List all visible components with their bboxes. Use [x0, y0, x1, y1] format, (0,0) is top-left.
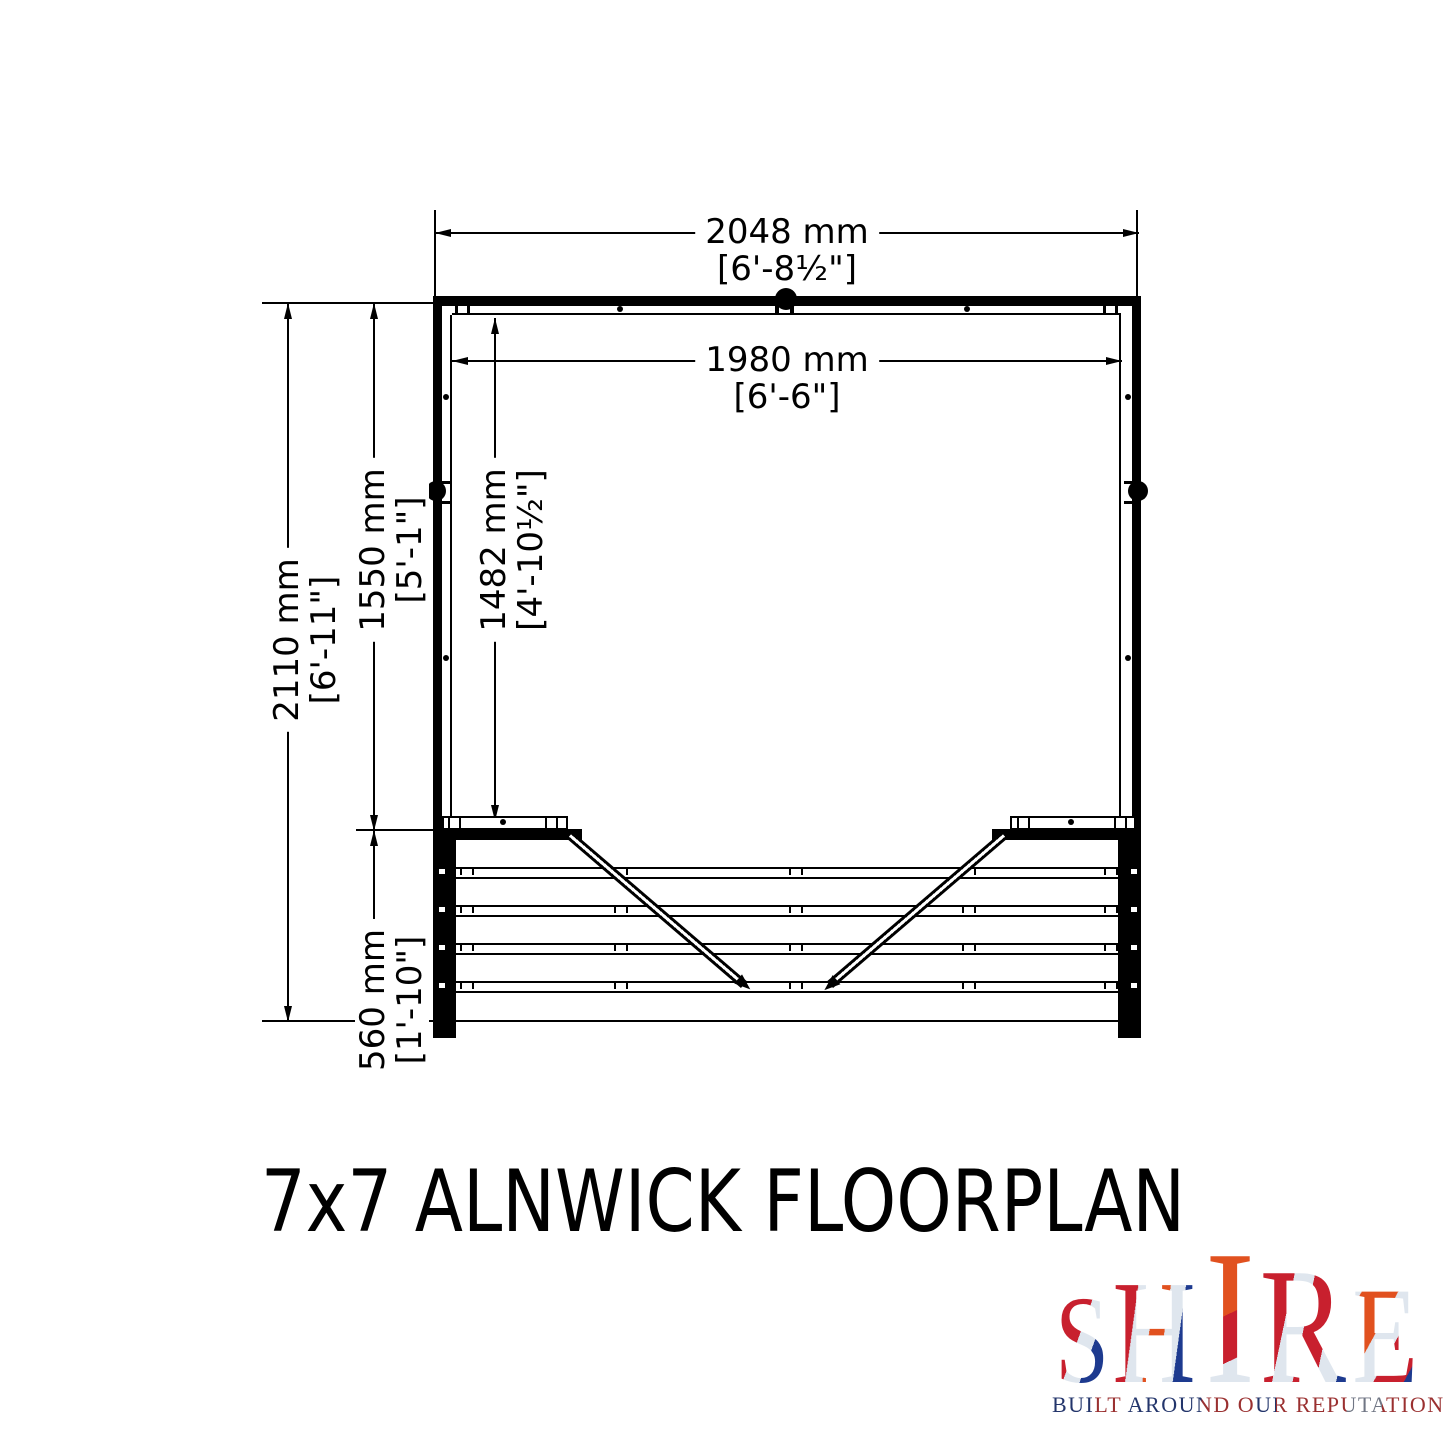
- dim-imperial: [6'-6"]: [705, 379, 869, 416]
- deck-joint-tick: [460, 943, 474, 951]
- floorplan-page: 2048 mm [6'-8½"] 1980 mm [6'-6"] 2110 mm…: [0, 0, 1445, 1445]
- dim-imperial: [1'-10"]: [392, 929, 429, 1071]
- fixing-dot: [1125, 655, 1131, 661]
- dim-label-outer-width: 2048 mm [6'-8½"]: [695, 214, 879, 288]
- deck-joint-tick: [789, 943, 803, 951]
- dim-metric: 1550 mm: [355, 468, 392, 632]
- deck-joint-tick: [614, 905, 628, 913]
- dim-arrow-up: [370, 830, 378, 846]
- logo-tagline: BUILT AROUND OUR REPUTATION: [1052, 1392, 1445, 1418]
- dim-arrow-up: [370, 303, 378, 319]
- fixing-dot: [1068, 819, 1074, 825]
- deck-joint-tick: [614, 981, 628, 989]
- extension-line-top-right: [1136, 210, 1138, 296]
- dim-imperial: [6'-11"]: [306, 558, 343, 722]
- panel-tick: [1028, 817, 1030, 829]
- deck-board-edge: [456, 943, 1118, 955]
- post-notch: [439, 983, 445, 988]
- post-notch: [1131, 945, 1137, 950]
- stud-tick: [1124, 501, 1132, 504]
- deck-joint-tick: [460, 867, 474, 875]
- deck-joint-tick: [1104, 943, 1118, 951]
- deck-joint-tick: [962, 943, 976, 951]
- deck-joint-tick: [1104, 981, 1118, 989]
- dim-arrow-right: [1106, 357, 1122, 365]
- wall-right-inner-line: [1119, 315, 1121, 818]
- post-notch: [439, 945, 445, 950]
- dim-arrow-down: [370, 815, 378, 831]
- wall-top-inner-line: [452, 313, 1121, 315]
- stud-tick: [775, 305, 779, 315]
- shire-logo: SHIRE: [1055, 1222, 1421, 1414]
- veranda-post-right: [1118, 829, 1141, 1038]
- stud-tick: [467, 305, 470, 315]
- stud-tick: [1124, 481, 1132, 484]
- fixing-dot: [964, 306, 970, 312]
- fixing-dot: [500, 819, 506, 825]
- logo-letter: S: [1055, 1272, 1112, 1410]
- deck-joint-tick: [789, 867, 803, 875]
- dim-imperial: [4'-10½"]: [513, 468, 550, 632]
- deck-joint-tick: [789, 981, 803, 989]
- wall-left: [433, 296, 442, 840]
- fixing-dot: [443, 394, 449, 400]
- deck-board-edge: [456, 981, 1118, 993]
- dim-label-inner-width: 1980 mm [6'-6"]: [695, 342, 879, 416]
- logo-letter: E: [1352, 1259, 1421, 1412]
- fixing-dot: [443, 655, 449, 661]
- dim-metric: 2110 mm: [269, 558, 306, 722]
- panel-tick: [448, 817, 450, 829]
- extension-line-top-left: [434, 210, 436, 296]
- post-notch: [1131, 983, 1137, 988]
- panel-tick: [459, 817, 461, 829]
- dim-arrow-left: [435, 229, 451, 237]
- post-notch: [439, 869, 445, 874]
- panel-tick: [545, 817, 547, 829]
- panel-tick: [1114, 817, 1116, 829]
- fixing-dot: [1125, 394, 1131, 400]
- panel-tick: [556, 817, 558, 829]
- deck-joint-tick: [962, 981, 976, 989]
- stud-tick: [442, 481, 450, 484]
- dim-metric: 560 mm: [355, 929, 392, 1071]
- logo-letter: H: [1112, 1251, 1198, 1415]
- dim-imperial: [6'-8½"]: [705, 251, 869, 288]
- dim-arrow-left: [452, 357, 468, 365]
- stud-tick: [1103, 305, 1106, 315]
- deck-joint-tick: [460, 981, 474, 989]
- dim-arrow-up: [491, 318, 499, 334]
- deck-joint-tick: [460, 905, 474, 913]
- panel-tick: [1017, 817, 1019, 829]
- extension-line-left-mid: [356, 829, 433, 831]
- page-title: 7x7 ALNWICK FLOORPLAN: [261, 1152, 1185, 1252]
- fixing-dot: [617, 306, 623, 312]
- deck-board-edge: [456, 905, 1118, 917]
- deck-joint-tick: [614, 943, 628, 951]
- stud-tick: [442, 501, 450, 504]
- veranda-post-left: [433, 829, 456, 1038]
- post-notch: [1131, 869, 1137, 874]
- wall-right: [1132, 296, 1141, 840]
- dim-metric: 2048 mm: [705, 214, 869, 251]
- deck-board-edge: [456, 867, 1118, 879]
- dim-arrow-down: [284, 1006, 292, 1022]
- dim-label-total-depth: 2110 mm [6'-11"]: [269, 548, 343, 732]
- dim-label-veranda-depth: 560 mm [1'-10"]: [355, 919, 429, 1081]
- panel-tick: [1125, 817, 1127, 829]
- stud-tick: [790, 305, 794, 315]
- dim-imperial: [5'-1"]: [392, 468, 429, 632]
- logo-letter: R: [1260, 1234, 1349, 1418]
- post-notch: [439, 907, 445, 912]
- deck-joint-tick: [962, 905, 976, 913]
- stud-tick: [1115, 305, 1118, 315]
- dim-metric: 1980 mm: [705, 342, 869, 379]
- dim-metric: 1482 mm: [476, 468, 513, 632]
- wall-left-inner-line: [450, 315, 452, 818]
- deck-joint-tick: [1104, 905, 1118, 913]
- dim-arrow-right: [1123, 229, 1139, 237]
- dim-label-inner-depth: 1482 mm [4'-10½"]: [476, 458, 550, 642]
- deck-joint-tick: [1104, 867, 1118, 875]
- dim-label-main-depth: 1550 mm [5'-1"]: [355, 458, 429, 642]
- dim-arrow-up: [284, 303, 292, 319]
- post-notch: [1131, 907, 1137, 912]
- deck-joint-tick: [789, 905, 803, 913]
- window-peg-right: [1128, 481, 1148, 501]
- stud-tick: [455, 305, 458, 315]
